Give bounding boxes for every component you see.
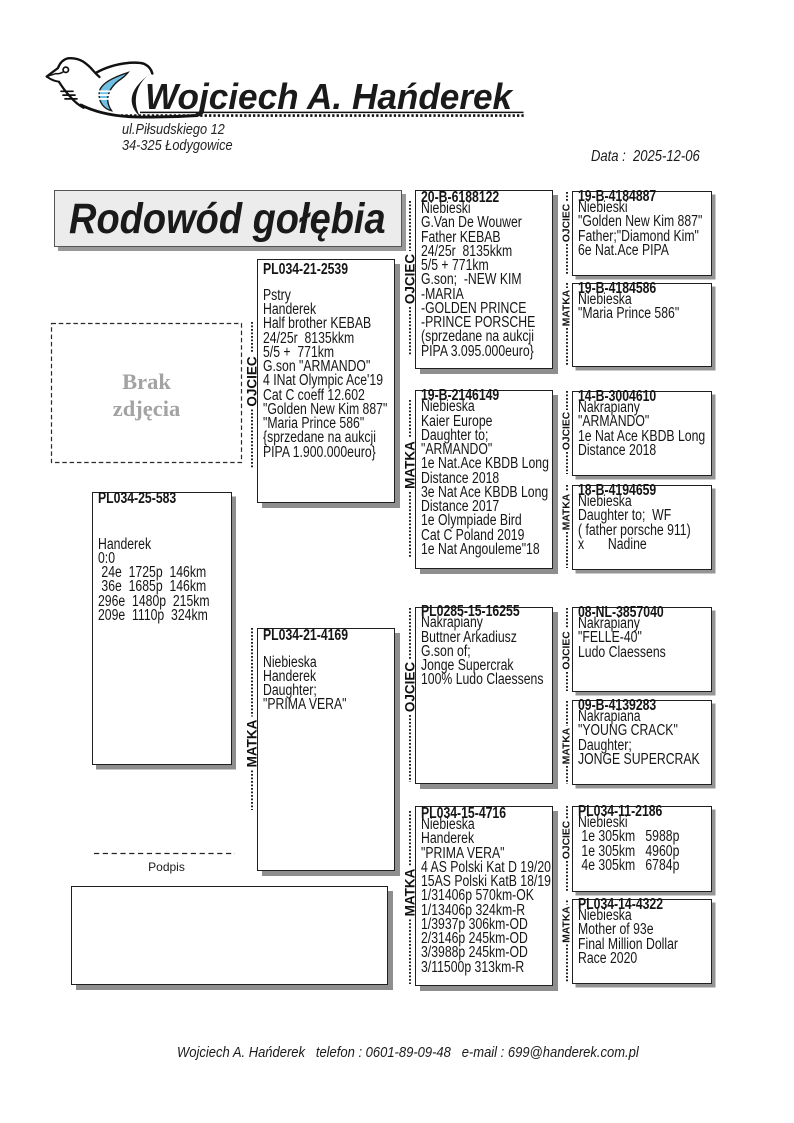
svg-text:MATKA: MATKA [562,493,573,530]
svg-text:OJCIEC: OJCIEC [562,411,573,450]
svg-text:MATKA: MATKA [562,906,573,943]
svg-text:MATKA: MATKA [562,289,573,326]
svg-text:OJCIEC: OJCIEC [562,203,573,242]
svg-text:MATKA: MATKA [562,727,573,764]
svg-text:OJCIEC: OJCIEC [562,820,573,859]
svg-text:OJCIEC: OJCIEC [562,631,573,670]
